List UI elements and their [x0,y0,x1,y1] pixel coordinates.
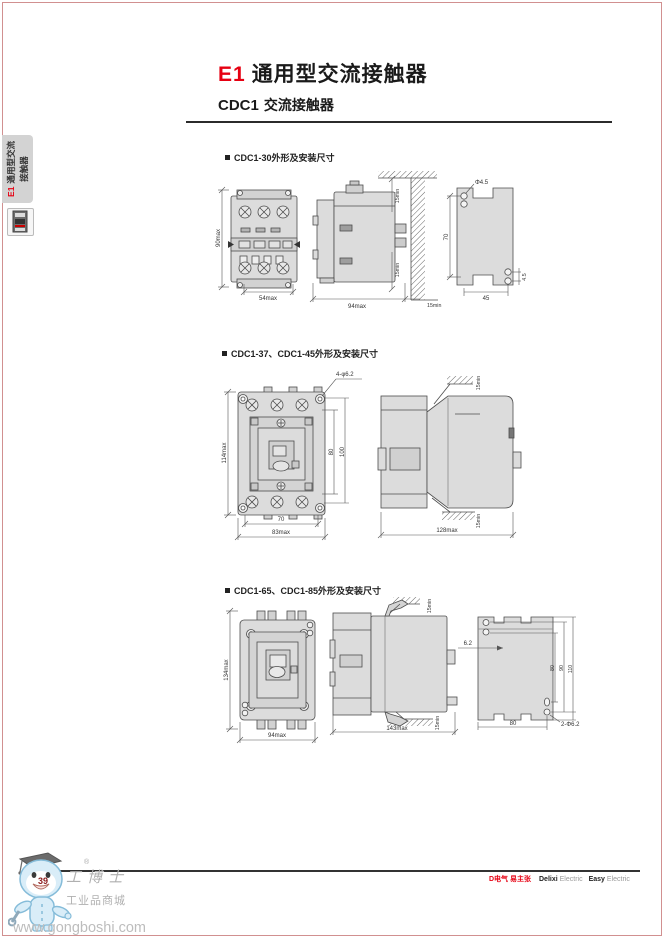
contactor-product-icon [7,208,34,236]
side-view-drawing [330,597,457,726]
tab-series-name2: 接触器 [18,156,30,182]
page-subtitle: CDC1交流接触器 [218,95,334,115]
section-heading-1: CDC1-30外形及安装尺寸 [225,151,335,164]
dim-label: 114max [222,443,228,464]
front-view-drawing [240,611,315,729]
dim-label: 6.2 [464,641,473,647]
dim-label: 110 [568,665,574,673]
dim-label: 4-φ6.2 [336,372,354,378]
front-view-drawing [238,387,325,519]
brand-name-delixi: Delixi [539,876,558,883]
gongboshi-watermark: 39 ® 工博士 工业品商城 www.gongboshi.com [8,852,178,938]
sidebar-tab-text: E1通用型交流 接触器 [2,135,33,203]
watermark-url: www.gongboshi.com [12,920,146,936]
dim-label: 100 [340,446,346,457]
dim-label: 80 [510,721,517,727]
dim-label: 15min [395,263,401,277]
cdc1-65-85-dimension-drawings: 134max 94max 15min 15min 143max [210,590,615,775]
tab-series-name: 通用型交流 [6,141,16,184]
dim-label: 83max [272,530,290,536]
mounting-plate-drawing [457,188,513,285]
dim-label: 54max [259,296,277,302]
dim-label: 15min [476,376,482,390]
watermark-name: 工博士 [66,869,129,886]
brand-word-electric: Electric [560,876,583,883]
side-view-drawing [313,171,438,300]
cdc1-30-dimension-drawings: 90max 54max 15min 15min 94max 15min [160,165,615,315]
brand-word-electric: Electric [607,876,630,883]
dim-label: 80 [550,665,556,671]
dim-label: 70 [444,233,450,240]
dim-label: 4.5 [522,273,528,280]
page-title: E1通用型交流接触器 [218,58,428,88]
mounting-plate-drawing [478,617,553,720]
registered-mark: ® [84,858,90,866]
dim-label: 94max [268,733,286,739]
series-code: E1 [218,63,246,86]
series-name: 通用型交流接触器 [252,63,428,86]
dim-label: 15min [476,514,482,528]
dim-label: 2-Φ6.2 [561,722,580,728]
dim-label: 45 [483,296,490,302]
dim-label: Φ4.5 [475,180,489,186]
dim-label: 15min [435,716,441,730]
sidebar-series-tab: E1通用型交流 接触器 [2,135,33,203]
dim-label: 80 [329,448,335,455]
tab-series-code: E1 [6,187,16,197]
footer-brand: D电气 易主张Delixi ElectricEasy Electric [489,874,636,884]
front-view-drawing [228,190,300,288]
side-view-drawing [378,376,521,520]
dim-label: 70 [278,517,285,523]
dim-label: 15min [427,303,441,309]
watermark-tagline: 工业品商城 [66,893,126,907]
mini-contactor-glyph [8,209,33,235]
brand-name-easy: Easy [589,876,605,883]
dim-label: 90max [216,229,222,247]
dim-label: 15min [427,599,433,613]
header-divider [186,121,612,123]
dim-label: 94max [348,304,366,310]
model-name: 交流接触器 [264,97,334,113]
model-code: CDC1 [218,97,259,114]
dim-label: 134max [224,659,230,680]
brand-slogan: D电气 易主张 [489,876,531,883]
section-bullet-icon [225,155,230,160]
page-number: 39 [38,876,48,886]
dim-label: 90 [559,665,565,671]
catalog-page: { "page": { "title": { "code": "E1", "te… [0,0,664,938]
dim-label: 143max [386,726,407,732]
section-heading-text: CDC1-30外形及安装尺寸 [234,151,335,164]
cdc1-37-45-dimension-drawings: 4-φ6.2 114max 80 100 70 83max 15min 15mi… [160,355,615,555]
dim-label: 15min [395,189,401,203]
dim-label: 128max [436,528,457,534]
